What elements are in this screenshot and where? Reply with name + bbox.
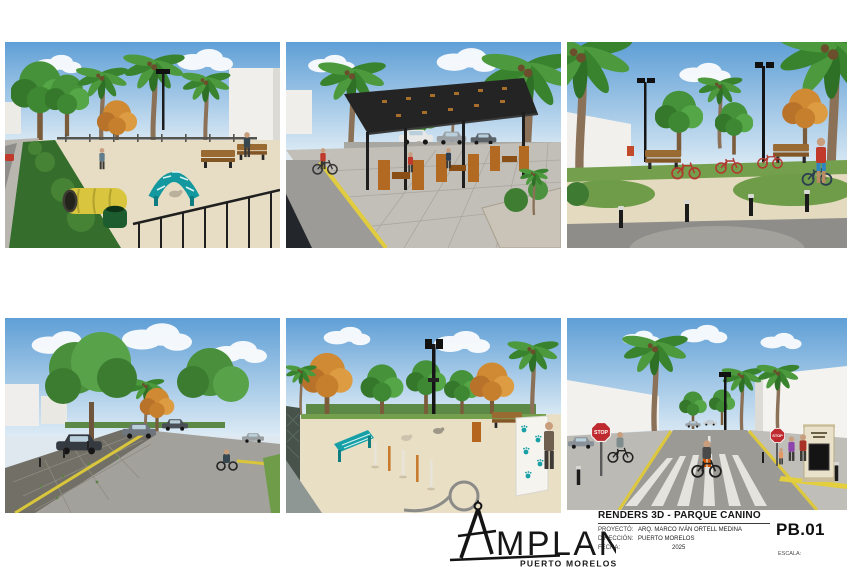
scale-label: ESCALA: <box>778 551 801 557</box>
entrance-kiosk <box>802 424 836 482</box>
render-panel-bike-racks <box>567 42 847 248</box>
trash-bin <box>627 146 634 156</box>
implan-logo: MPLAN PUERTO MORELOS <box>448 500 616 567</box>
post <box>762 452 764 463</box>
building <box>229 68 280 146</box>
building <box>286 90 312 134</box>
field-value-fecha: 2025 <box>672 545 685 551</box>
trash-bin <box>103 206 127 228</box>
render-panel-dog-park-play-area <box>5 42 280 248</box>
building <box>5 384 39 426</box>
field-value-direccion: PUERTO MORELOS <box>638 536 694 542</box>
presentation-sheet: RENDERS 3D - PARQUE CANINO PROYECTÓ:ARQ.… <box>0 0 854 567</box>
render-panel-pergola-seating <box>286 42 561 248</box>
field-value-proyecto: ARQ. MARCO IVÁN ORTELL MEDINA <box>638 527 742 533</box>
building <box>5 102 21 134</box>
parked-car <box>5 154 14 161</box>
field-row-fecha: FECHA:2025 <box>598 544 854 553</box>
render-panel-crosswalk <box>567 318 847 510</box>
render-panel-street-parking <box>5 318 280 513</box>
render-panel-agility-course <box>286 318 561 513</box>
dispenser-post <box>472 422 481 442</box>
sheet-number: PB.01 <box>776 520 825 540</box>
logo-wordmark: MPLAN <box>496 525 616 563</box>
building-right-shade <box>755 376 763 433</box>
logo-subtext: PUERTO MORELOS <box>520 559 616 567</box>
title-rule <box>598 523 770 524</box>
building-shadow <box>273 68 280 146</box>
paw-print-sign <box>516 416 548 496</box>
